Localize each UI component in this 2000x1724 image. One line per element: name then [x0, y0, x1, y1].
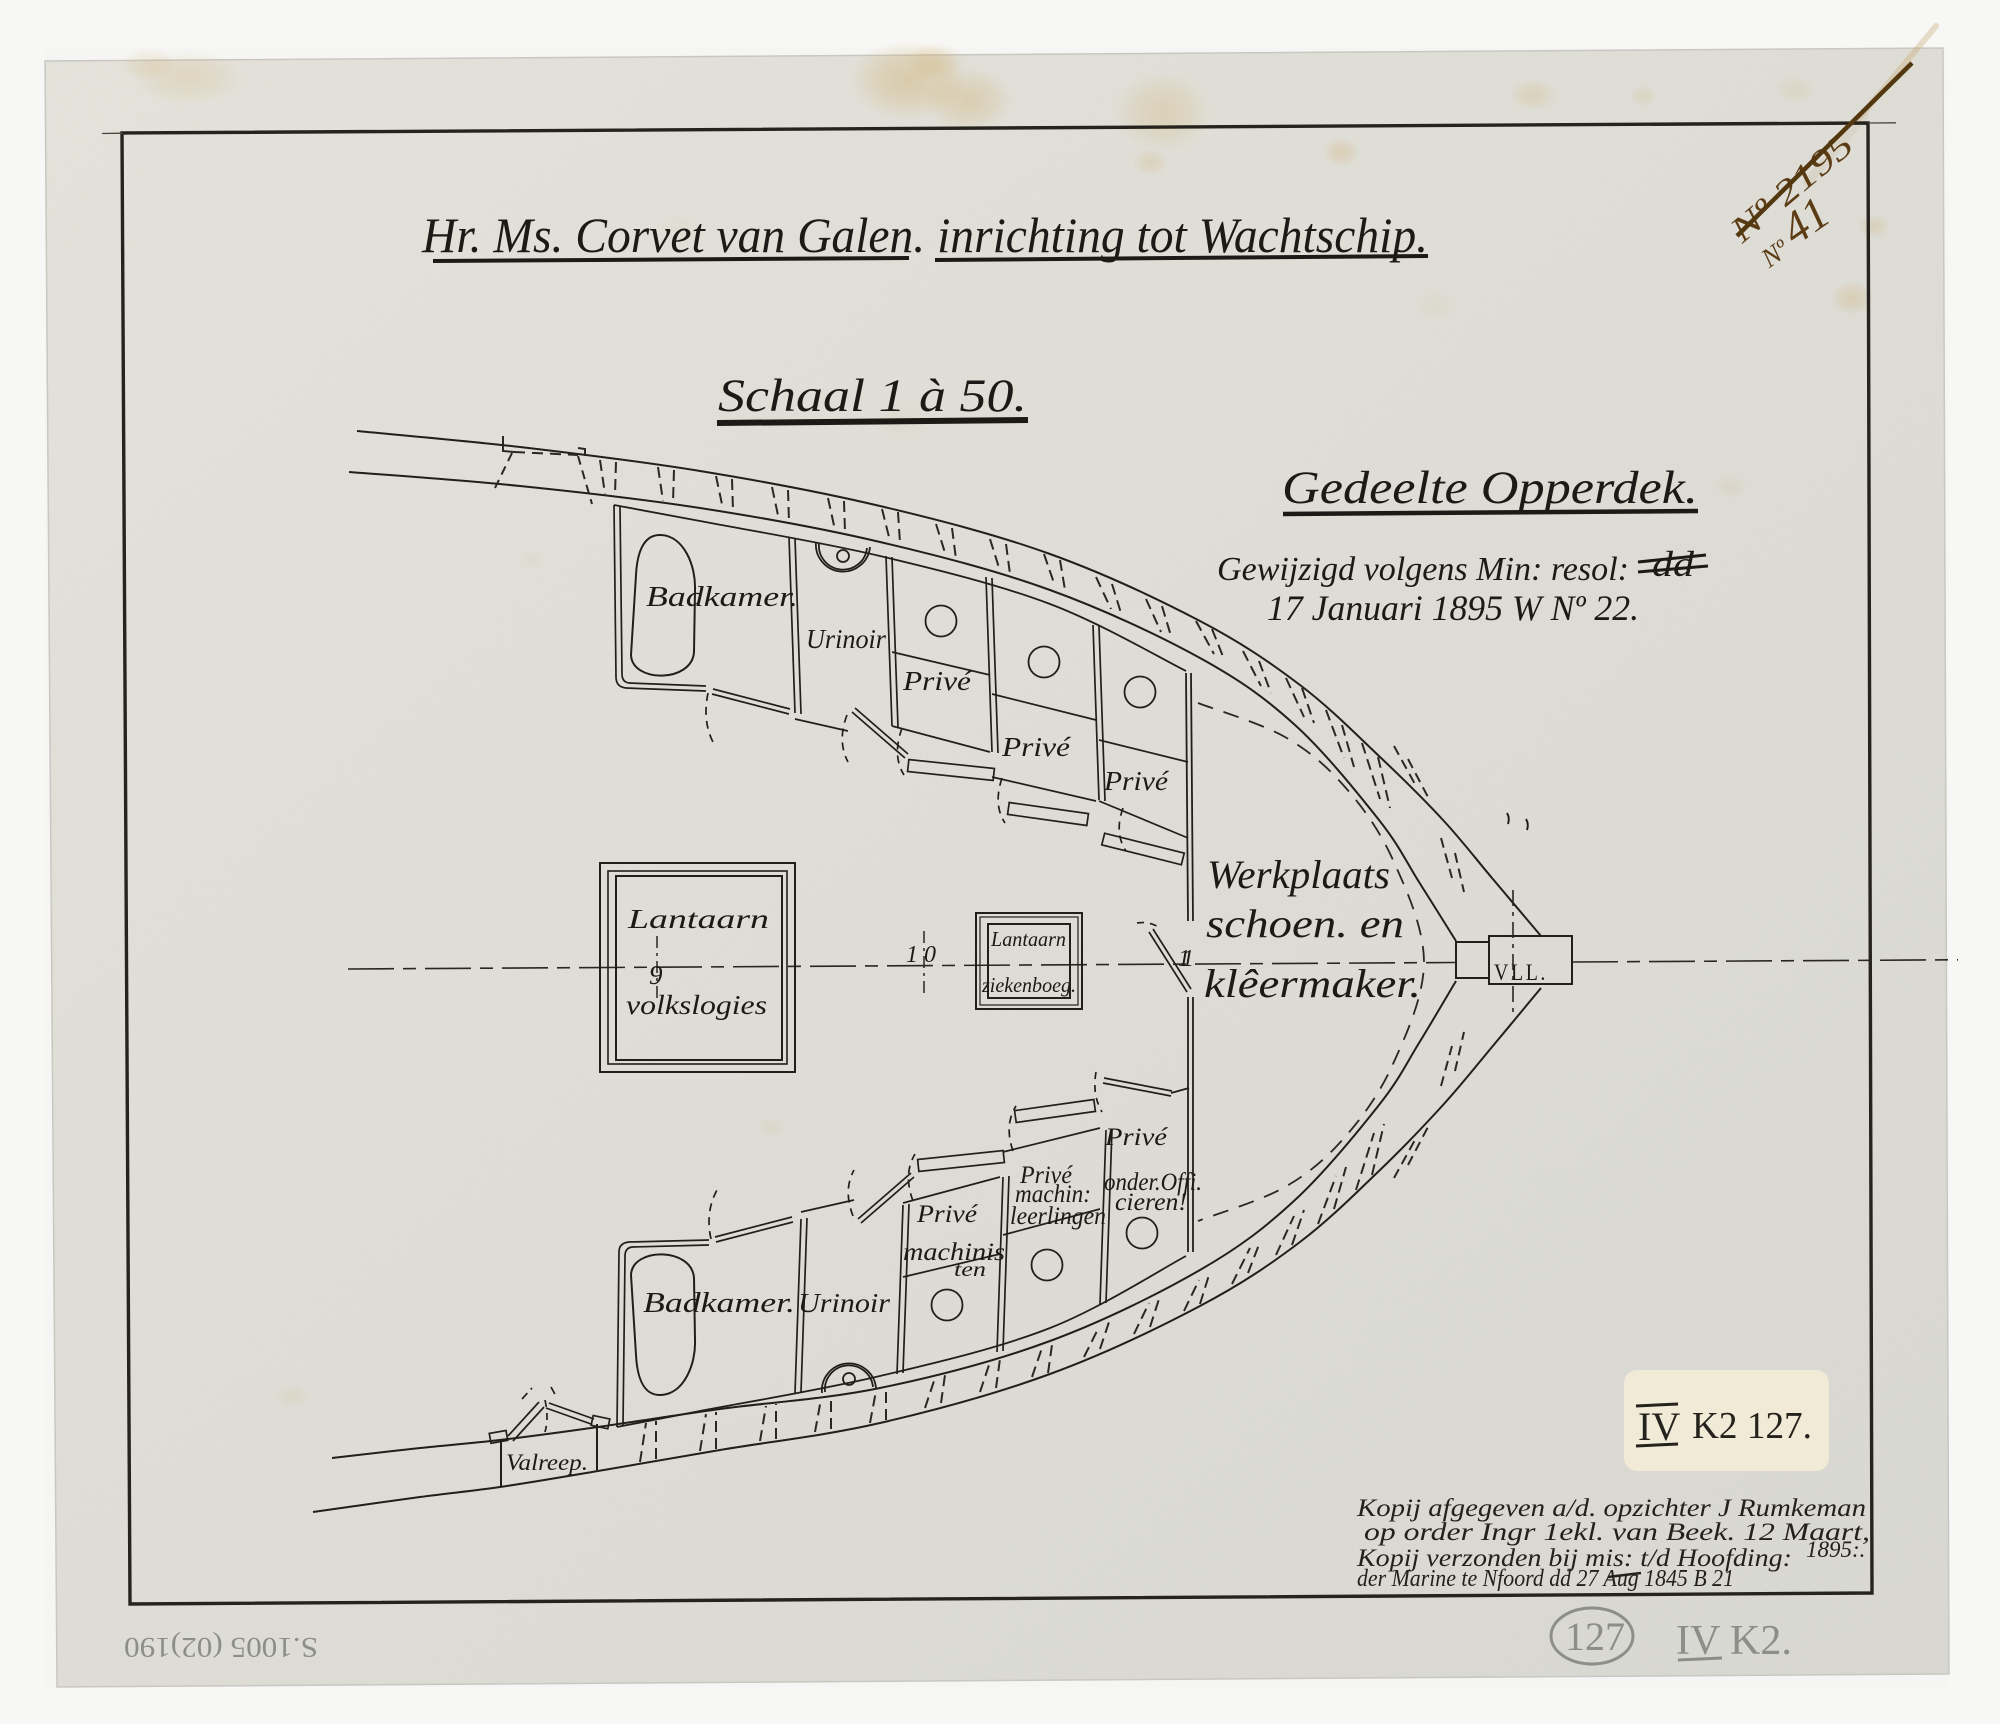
svg-text:schoen. en: schoen. en [1206, 901, 1404, 946]
svg-text:Privé: Privé [1001, 732, 1071, 762]
svg-text:IV K2.: IV K2. [1676, 1618, 1792, 1664]
svg-text:ziekenboeg.: ziekenboeg. [981, 973, 1076, 997]
svg-text:Valreep.: Valreep. [506, 1450, 588, 1475]
svg-text:Hr. Ms. Corvet van Galen. inri: Hr. Ms. Corvet van Galen. inrichting tot… [421, 207, 1428, 263]
svg-text:Kopij afgegeven a/d. opzichter: Kopij afgegeven a/d. opzichter J Rumkema… [1356, 1495, 1866, 1522]
svg-text:Werkplaats: Werkplaats [1207, 852, 1390, 897]
svg-text:klêermaker.: klêermaker. [1204, 961, 1421, 1006]
svg-text:K2 127.: K2 127. [1692, 1405, 1812, 1447]
svg-text:op order Ingr 1ekl. van Beek.: op order Ingr 1ekl. van Beek. 12 Maart, [1364, 1519, 1870, 1546]
svg-text:S.1005 (02)190: S.1005 (02)190 [124, 1631, 318, 1662]
svg-text:leerlingen: leerlingen [1010, 1203, 1106, 1230]
svg-text:Privé: Privé [1104, 1124, 1168, 1151]
svg-text:9: 9 [649, 960, 663, 990]
svg-text:dd: dd [1652, 544, 1695, 584]
svg-text:VLL.: VLL. [1494, 960, 1548, 985]
svg-text:11: 11 [1178, 946, 1194, 972]
svg-text:Gewijzigd volgens Min: resol:: Gewijzigd volgens Min: resol: [1217, 551, 1629, 588]
svg-text:der Marine te Nfoord dd 27 Aug: der Marine te Nfoord dd 27 Aug 1845 B 21 [1357, 1566, 1734, 1592]
svg-text:ten: ten [954, 1259, 986, 1281]
svg-text:volkslogies: volkslogies [626, 990, 767, 1020]
svg-text:Privé: Privé [1103, 766, 1169, 796]
svg-text:Schaal 1 à 50.: Schaal 1 à 50. [718, 370, 1027, 422]
svg-text:Privé: Privé [902, 666, 972, 696]
svg-text:IV: IV [1638, 1404, 1680, 1449]
svg-text:Badkamer.: Badkamer. [646, 582, 798, 613]
svg-text:Lantaarn: Lantaarn [627, 904, 769, 934]
svg-text:Lantaarn: Lantaarn [990, 927, 1066, 951]
svg-text:127: 127 [1565, 1614, 1625, 1659]
svg-text:1895:.: 1895:. [1806, 1537, 1865, 1562]
svg-text:cieren!: cieren! [1115, 1189, 1187, 1216]
svg-text:Gedeelte Opperdek.: Gedeelte Opperdek. [1282, 462, 1698, 514]
svg-text:Urinoir: Urinoir [798, 1288, 891, 1318]
svg-text:Urinoir: Urinoir [806, 624, 886, 654]
svg-text:17 Januari 1895 W Nº 22.: 17 Januari 1895 W Nº 22. [1267, 588, 1639, 628]
svg-text:Privé: Privé [916, 1201, 978, 1228]
svg-text:Badkamer.: Badkamer. [643, 1288, 795, 1319]
